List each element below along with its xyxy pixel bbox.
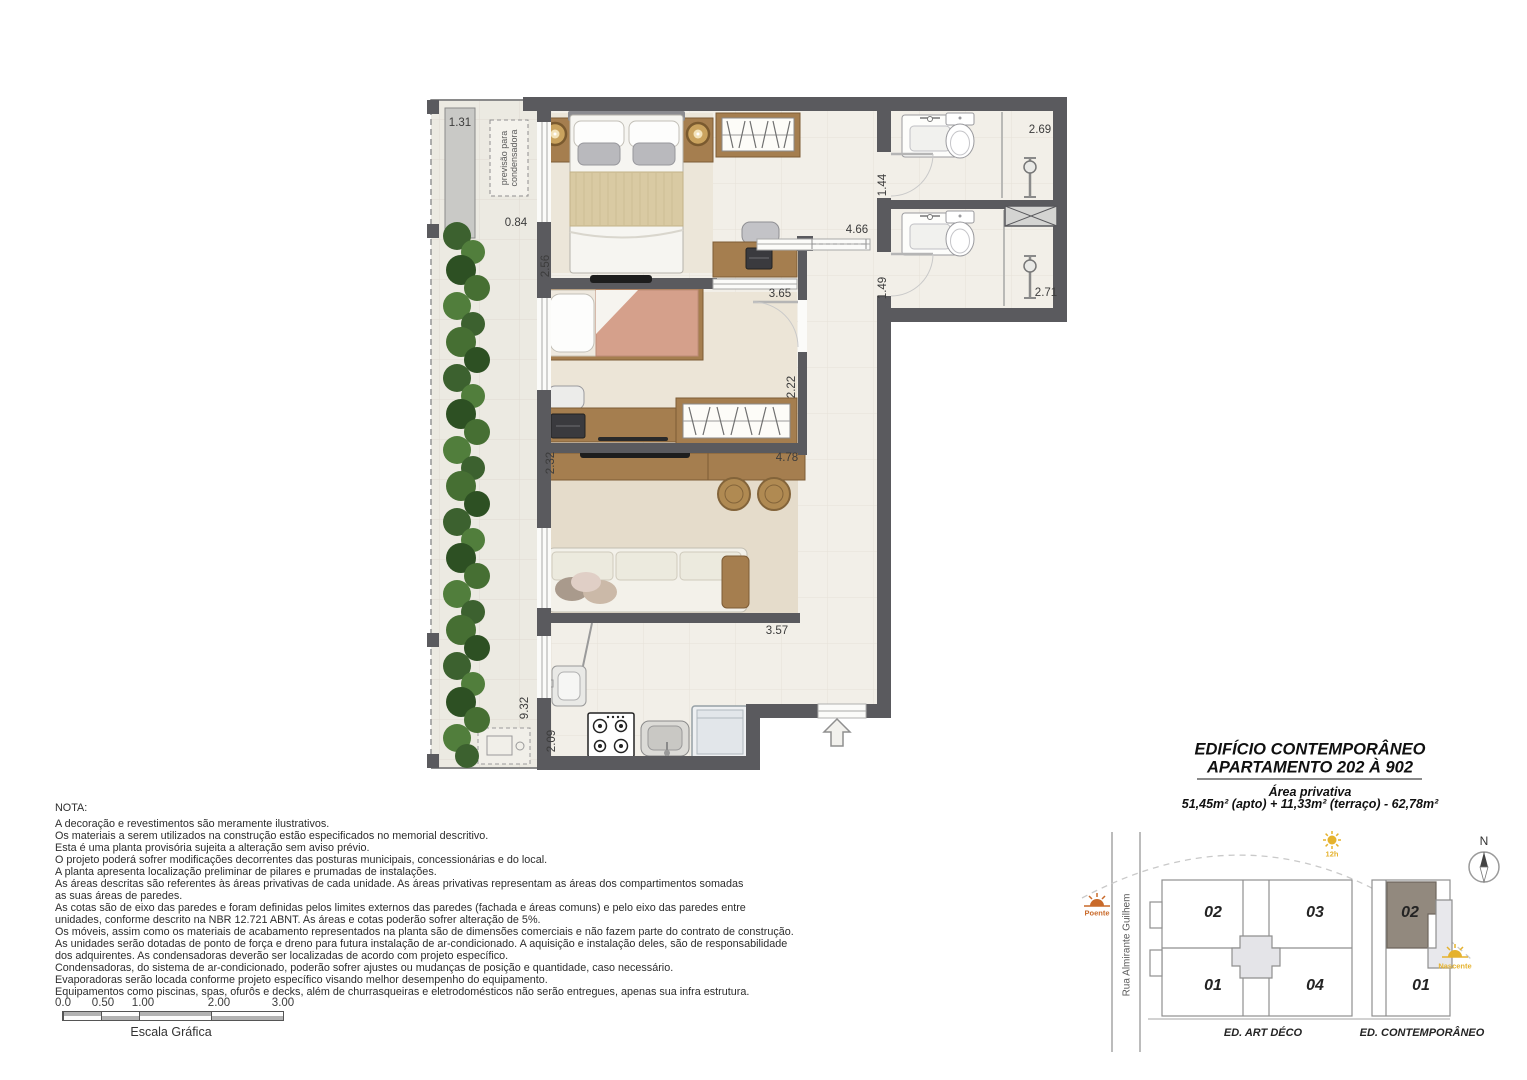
wardrobe-bedroom2: [676, 398, 797, 444]
scale-tick-300: 3.00: [272, 997, 294, 1009]
scale-tick-200: 2.00: [208, 997, 230, 1009]
title-line1: EDIFÍCIO CONTEMPORÂNEO: [1194, 741, 1425, 760]
dim-2-69: 2.69: [1029, 124, 1051, 136]
wardrobe-master: [716, 113, 800, 157]
terrace-appliance: [478, 728, 530, 764]
nota-line: Os móveis, assim como os materiais de ac…: [55, 926, 794, 938]
dim-3-65: 3.65: [769, 288, 791, 300]
dim-1-44: 1.44: [877, 174, 889, 196]
nota-block: NOTA: A decoração e revestimentos são me…: [55, 802, 794, 998]
unit-artdeco-04: 04: [1306, 977, 1324, 995]
unit-contemporaneo-01: 01: [1412, 977, 1430, 995]
nota-line: unidades, conforme descrito na NBR 12.72…: [55, 914, 794, 926]
window-master: [537, 122, 551, 222]
double-bed: [568, 111, 685, 273]
graphic-scale-bar: [62, 1011, 284, 1021]
unit-contemporaneo-02: 02: [1401, 904, 1419, 922]
nota-line: A planta apresenta localização prelimina…: [55, 866, 794, 878]
sun-west-label: Poente: [1084, 909, 1109, 918]
dim-2-56: 2.56: [540, 255, 552, 277]
dim-2-09: 2.09: [546, 730, 558, 752]
building-art-deco: [1150, 880, 1352, 1016]
sun-poente-icon: [1084, 893, 1110, 906]
nota-line: as suas áreas de paredes.: [55, 890, 794, 902]
refrigerator: [692, 706, 748, 759]
scale-tick-100: 1.00: [132, 997, 154, 1009]
label-art-deco: ED. ART DÉCO: [1224, 1027, 1302, 1039]
building-contemporaneo: [1372, 880, 1452, 1016]
scale-label: Escala Gráfica: [130, 1025, 211, 1039]
dim-4-78: 4.78: [776, 452, 798, 464]
unit-artdeco-02: 02: [1204, 904, 1222, 922]
floor-plan-sheet: 1.31 0.84 2.56 3.65 4.66 1.44 2.69 1.49 …: [0, 0, 1527, 1080]
area-value: 51,45m² (apto) + 11,33m² (terraço) - 62,…: [1182, 797, 1438, 811]
dim-2-32: 2.32: [545, 452, 557, 474]
nota-line: O projeto poderá sofrer modificações dec…: [55, 854, 794, 866]
north-label: N: [1480, 834, 1489, 848]
single-bed: [541, 286, 703, 360]
window-bedroom2: [537, 298, 551, 390]
dim-3-57: 3.57: [766, 625, 788, 637]
nota-line: As cotas são de eixo das paredes e foram…: [55, 902, 794, 914]
unit-artdeco-01: 01: [1204, 977, 1222, 995]
entry-arrow: [824, 719, 850, 746]
dim-4-66: 4.66: [846, 224, 868, 236]
condenser-label: previsão para condensadora: [499, 116, 519, 200]
stool-2: [758, 478, 790, 510]
nota-line: dos adquirentes. As condensadoras deverã…: [55, 950, 794, 962]
street-name: Rua Almirante Guilhem: [1122, 894, 1133, 997]
nota-line: Condensadoras, do sistema de ar-condicio…: [55, 962, 794, 974]
dim-9-32: 9.32: [519, 697, 531, 719]
title-rule: [1197, 778, 1422, 780]
duct-shaft: [1005, 206, 1057, 226]
nota-line: Evaporadoras serão locada conforme proje…: [55, 974, 794, 986]
tv-master: [590, 275, 652, 283]
scale-tick-050: 0.50: [92, 997, 114, 1009]
desk-chair-bedroom2: [548, 386, 584, 409]
site-plan: [1082, 831, 1499, 1052]
stool-1: [718, 478, 750, 510]
nota-line: As unidades serão dotadas de ponto de fo…: [55, 938, 794, 950]
entry-door: [818, 704, 866, 718]
dim-0-84: 0.84: [505, 217, 527, 229]
stove: [588, 713, 634, 757]
sofa: [548, 548, 749, 612]
unit-artdeco-03: 03: [1306, 904, 1324, 922]
sun-noon-icon: [1323, 831, 1341, 849]
nota-line: Os materiais a serem utilizados na const…: [55, 830, 794, 842]
label-contemporaneo: ED. CONTEMPORÂNEO: [1360, 1027, 1485, 1039]
sun-east-label: Nascente: [1438, 962, 1471, 971]
dim-1-49: 1.49: [877, 277, 889, 299]
sofa-throw: [722, 556, 749, 608]
dim-2-71: 2.71: [1035, 287, 1057, 299]
dim-2-22: 2.22: [786, 376, 798, 398]
sofa-pillow-3: [571, 572, 601, 592]
nota-line: As áreas descritas são referentes às áre…: [55, 878, 794, 890]
sun-noon-label: 12h: [1326, 850, 1339, 859]
nota-line: A decoração e revestimentos são merament…: [55, 818, 794, 830]
nota-line: Esta é uma planta provisória sujeita a a…: [55, 842, 794, 854]
north-compass-icon: [1469, 852, 1499, 882]
window-kitchen: [537, 636, 551, 698]
title-line2: APARTAMENTO 202 À 902: [1207, 759, 1413, 778]
scale-tick-0: 0.0: [55, 997, 71, 1009]
dim-1-31: 1.31: [449, 117, 471, 129]
kitchen-sink: [641, 721, 689, 756]
window-living: [537, 528, 551, 608]
nota-line: Equipamentos como piscinas, spas, ofurôs…: [55, 986, 794, 998]
nota-heading: NOTA:: [55, 802, 794, 814]
